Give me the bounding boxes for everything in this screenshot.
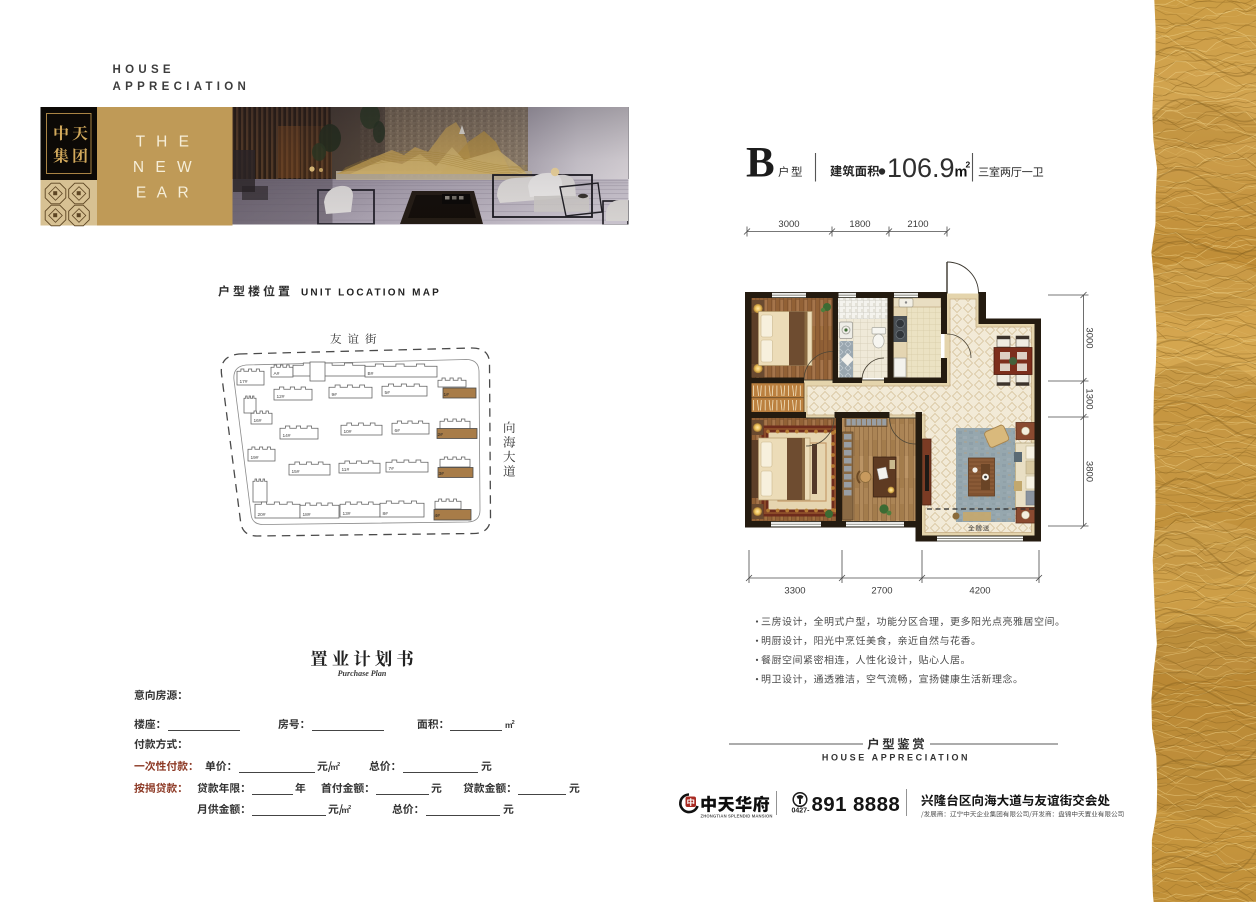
svg-text:4#: 4# <box>435 513 441 519</box>
svg-text:HOUSE APPRECIATION: HOUSE APPRECIATION <box>822 753 970 763</box>
svg-text:8#: 8# <box>383 511 389 517</box>
svg-text:19#: 19# <box>251 455 259 461</box>
svg-text:1800: 1800 <box>849 219 870 230</box>
svg-text:Purchase Plan: Purchase Plan <box>338 669 387 678</box>
svg-text:16#: 16# <box>254 418 262 424</box>
svg-text:10#: 10# <box>344 429 352 435</box>
svg-text:0427-: 0427- <box>792 808 811 815</box>
svg-text:12#: 12# <box>277 394 285 400</box>
svg-text:ZHONGTIAN SPLENDID MANSION: ZHONGTIAN SPLENDID MANSION <box>701 814 773 819</box>
svg-text:HOUSE: HOUSE <box>113 64 175 76</box>
svg-text:T H E: T H E <box>136 134 193 151</box>
svg-text:2: 2 <box>337 762 340 768</box>
svg-text:2100: 2100 <box>907 219 928 230</box>
svg-text:9#: 9# <box>332 392 338 398</box>
svg-text:N E W: N E W <box>133 159 195 176</box>
svg-text:18#: 18# <box>303 512 311 518</box>
svg-text:3000: 3000 <box>778 219 799 230</box>
svg-text:3300: 3300 <box>784 586 805 597</box>
svg-text:UNIT LOCATION MAP: UNIT LOCATION MAP <box>301 288 441 299</box>
svg-text:17#: 17# <box>240 379 248 385</box>
svg-text:14#: 14# <box>283 433 291 439</box>
svg-text:2: 2 <box>966 160 971 170</box>
svg-text:13#: 13# <box>343 511 351 517</box>
svg-text:E A R: E A R <box>136 185 192 202</box>
svg-text:7#: 7# <box>389 466 395 472</box>
svg-text:106.9: 106.9 <box>887 153 955 183</box>
svg-text:5#: 5# <box>385 390 391 396</box>
svg-text:1#: 1# <box>444 392 450 398</box>
svg-text:2#: 2# <box>438 432 444 438</box>
svg-text:B#: B# <box>368 371 374 377</box>
svg-text:APPRECIATION: APPRECIATION <box>113 81 251 93</box>
svg-text:4200: 4200 <box>969 586 990 597</box>
svg-text:3#: 3# <box>439 471 445 477</box>
svg-text:2700: 2700 <box>871 586 892 597</box>
svg-text:2: 2 <box>348 805 351 811</box>
svg-text:3800: 3800 <box>1084 461 1095 482</box>
svg-text:20#: 20# <box>258 512 266 518</box>
svg-text:1300: 1300 <box>1084 388 1095 409</box>
svg-text:3000: 3000 <box>1084 327 1095 348</box>
svg-text:B: B <box>746 140 775 187</box>
svg-text:891 8888: 891 8888 <box>812 793 901 816</box>
svg-text:6#: 6# <box>395 428 401 434</box>
svg-text:15#: 15# <box>292 469 300 475</box>
svg-text:A#: A# <box>274 371 280 377</box>
svg-text:11#: 11# <box>342 467 350 473</box>
svg-text:2: 2 <box>512 720 515 726</box>
